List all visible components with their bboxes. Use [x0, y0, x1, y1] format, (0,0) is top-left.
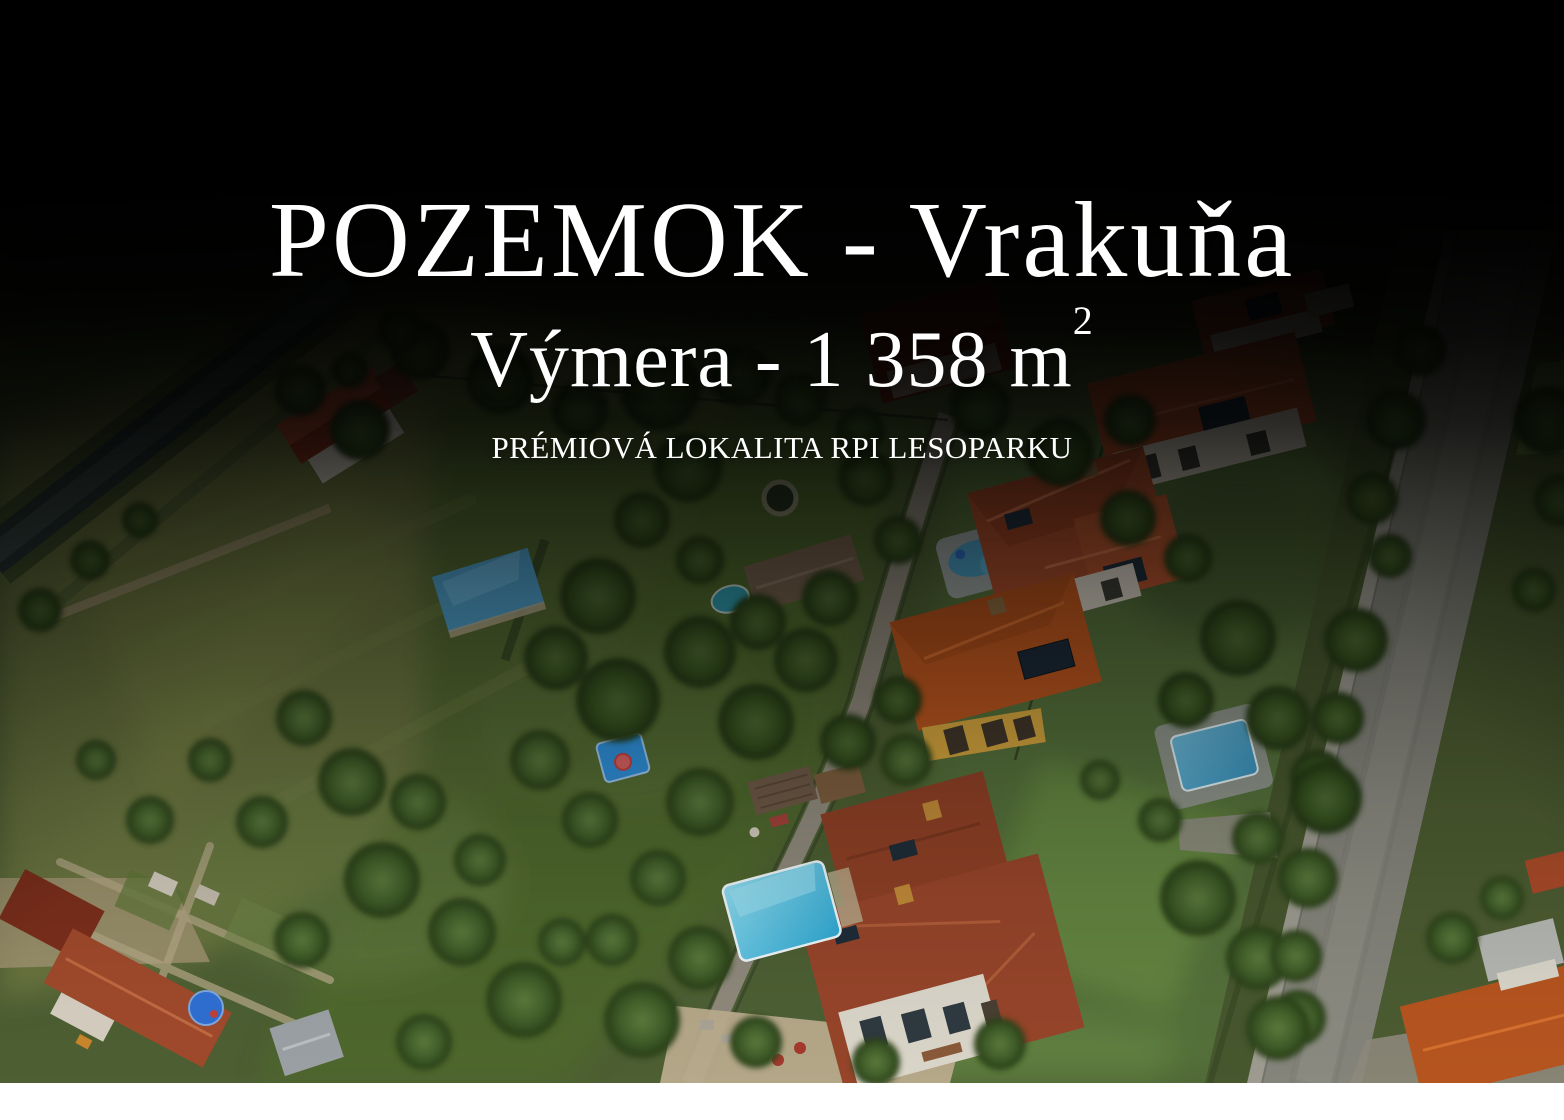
aerial-photo-illustration [0, 0, 1564, 1083]
aerial-photo [0, 0, 1564, 1083]
bottom-white-strip [0, 1083, 1564, 1120]
listing-cover: POZEMOK - Vrakuňa Výmera - 1 358 m2 PRÉM… [0, 0, 1564, 1120]
round-pond [764, 482, 796, 514]
